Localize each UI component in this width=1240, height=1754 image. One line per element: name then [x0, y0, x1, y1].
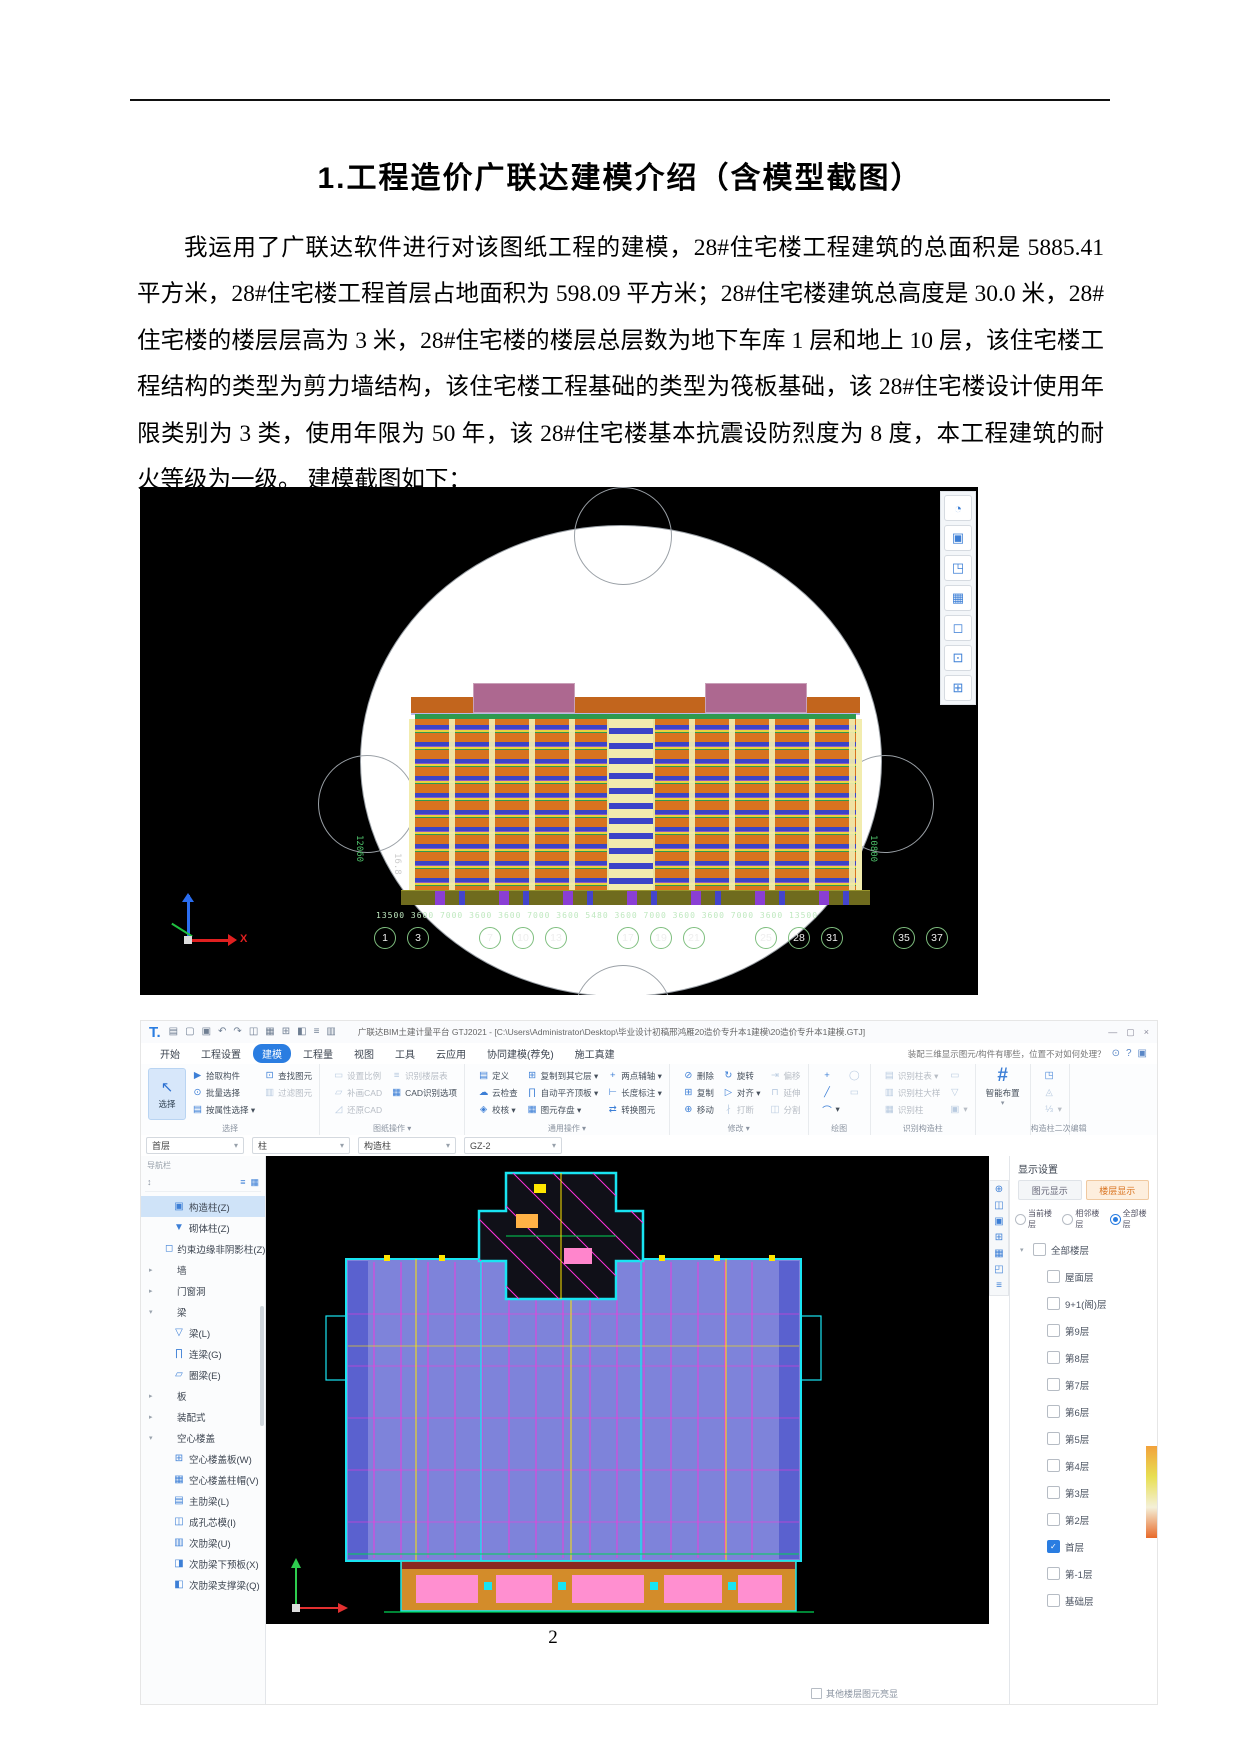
command-icon: ⇥: [770, 1070, 781, 1081]
ribbon-command[interactable]: ╱: [822, 1085, 840, 1100]
chevron-down-icon: ▾: [1001, 1099, 1005, 1107]
app-ribbon: ↖ 选择 ▶拾取构件⊡查找图元⊙批量选择▥过滤图元▤按属性选择 ▾ 选择 ▭设置…: [141, 1064, 1157, 1136]
view-tool-button[interactable]: ◔: [944, 495, 972, 521]
quick-access-icon[interactable]: ↷: [233, 1027, 241, 1037]
axis-bubble: [854, 927, 882, 947]
legend-color-strip: [1146, 1446, 1157, 1538]
ribbon-command[interactable]: ⊞复制: [683, 1085, 714, 1100]
ribbon-command[interactable]: ◯: [849, 1068, 863, 1083]
axis-bubble: 28: [788, 927, 810, 949]
tree-item[interactable]: ▾ 梁: [141, 1301, 265, 1322]
quick-access-icon[interactable]: ▦: [265, 1027, 274, 1037]
ribbon-command[interactable]: ▶拾取构件: [192, 1068, 255, 1083]
menu-tab[interactable]: 工程设置: [192, 1044, 250, 1063]
floor-row[interactable]: 第6层: [1010, 1398, 1157, 1425]
display-panel-header: 显示设置: [1010, 1156, 1157, 1180]
tree-item[interactable]: ▸ 板: [141, 1385, 265, 1406]
floor-checkbox[interactable]: [1047, 1270, 1060, 1283]
other-floors-option[interactable]: 其他楼层图元亮显: [811, 1687, 898, 1700]
canvas-tool-icon[interactable]: ▦: [994, 1249, 1003, 1259]
ribbon-command[interactable]: ◬: [1044, 1085, 1062, 1100]
axis-bubble: [716, 927, 744, 947]
page-header-rule: [130, 99, 1110, 101]
floor-checkbox[interactable]: [1047, 1513, 1060, 1526]
ribbon-command[interactable]: ≡识别楼层表: [391, 1068, 457, 1083]
command-icon: ▥: [264, 1087, 275, 1098]
orbit-handle-top: [574, 487, 672, 585]
command-icon: ▣: [949, 1104, 960, 1115]
floor-checkbox[interactable]: [1047, 1324, 1060, 1337]
component-icon: ◫: [173, 1516, 185, 1527]
ribbon-command[interactable]: ▤定义: [478, 1068, 518, 1083]
floor-row[interactable]: 第4层: [1010, 1452, 1157, 1479]
command-icon: ◬: [1044, 1087, 1055, 1098]
axis-bubble: 31: [821, 927, 843, 949]
page-number: 2: [538, 1627, 568, 1649]
ribbon-command[interactable]: ▦CAD识别选项: [391, 1085, 457, 1100]
canvas-tool-icon[interactable]: ▣: [994, 1217, 1003, 1227]
component-icon: ◨: [173, 1558, 185, 1569]
floor-checkbox[interactable]: [1047, 1594, 1060, 1607]
context-dropdown[interactable]: GZ-2: [464, 1137, 562, 1154]
command-icon: ⊓: [770, 1087, 781, 1098]
axis-triad: X: [168, 887, 258, 967]
ribbon-command[interactable]: ▭: [849, 1085, 863, 1100]
command-icon: ⇄: [607, 1104, 618, 1115]
navigation-panel: 导航栏 ↕ ≡▦ ▣ 构造柱(Z) ▼ 砌体柱(Z) ◻ 约束边缘非阴影柱(Z): [141, 1156, 266, 1704]
menu-tab[interactable]: 建模: [253, 1044, 291, 1063]
command-icon: ⅓: [1044, 1104, 1055, 1115]
context-dropdown[interactable]: 首层: [146, 1137, 244, 1154]
component-icon: ▣: [173, 1201, 185, 1212]
ribbon-command[interactable]: ⇥偏移: [770, 1068, 801, 1083]
floor-checkbox[interactable]: [1047, 1297, 1060, 1310]
ribbon-command[interactable]: ⊞复制到其它层 ▾: [527, 1068, 599, 1083]
command-icon: ◫: [770, 1104, 781, 1115]
dim-label-left: 12060: [354, 835, 364, 862]
other-floors-checkbox[interactable]: [811, 1688, 822, 1699]
chevron-down-icon: [446, 1141, 450, 1150]
canvas-tool-icon[interactable]: ◰: [994, 1265, 1003, 1275]
ribbon-group-identify-column: ▤识别柱表 ▾▭▥识别柱大样▽▦识别柱▣▾ 识别构造柱: [871, 1064, 976, 1135]
app-titlebar: T. ▤▢▣↶↷◫▦⊞◧≡▥ 广联达BIM土建计量平台 GTJ2021 - [C…: [141, 1021, 1157, 1043]
floor-checkbox[interactable]: [1047, 1432, 1060, 1445]
foundation-band: [401, 890, 870, 905]
menu-tab[interactable]: 视图: [345, 1044, 383, 1063]
command-icon: ▤: [478, 1070, 489, 1081]
ribbon-command[interactable]: ⌒▾: [822, 1102, 840, 1117]
component-icon: ◧: [173, 1579, 185, 1590]
ribbon-command[interactable]: ∏自动平齐顶板 ▾: [527, 1085, 599, 1100]
tree-item[interactable]: ◫ 成孔芯模(I): [141, 1511, 265, 1532]
command-icon: ▦: [391, 1087, 402, 1098]
view-tool-button[interactable]: ⊞: [944, 675, 972, 701]
ribbon-command[interactable]: ▷对齐 ▾: [723, 1085, 761, 1100]
drawing-canvas[interactable]: [266, 1156, 989, 1624]
command-icon: ▷: [723, 1087, 734, 1098]
select-button[interactable]: ↖ 选择: [148, 1068, 186, 1120]
sort-icon[interactable]: ↕: [147, 1177, 152, 1187]
context-dropdown[interactable]: 柱: [252, 1137, 350, 1154]
tree-twisty-icon: ▸: [149, 1287, 157, 1295]
window-control-button[interactable]: ×: [1144, 1027, 1149, 1038]
command-icon: ⊡: [264, 1070, 275, 1081]
floor-row[interactable]: 第8层: [1010, 1344, 1157, 1371]
axis-bubble: [440, 927, 468, 947]
floor-row[interactable]: 9+1(阁)层: [1010, 1290, 1157, 1317]
command-icon: ▥: [884, 1087, 895, 1098]
ribbon-command[interactable]: ⇄转换图元: [607, 1102, 662, 1117]
ribbon-command[interactable]: ▽: [949, 1085, 967, 1100]
ribbon-command[interactable]: ◿还原CAD: [333, 1102, 382, 1117]
gtj-app-screenshot: T. ▤▢▣↶↷◫▦⊞◧≡▥ 广联达BIM土建计量平台 GTJ2021 - [C…: [140, 1020, 1158, 1705]
doc-paragraph: 我运用了广联达软件进行对该图纸工程的建模，28#住宅楼工程建筑的总面积是 588…: [137, 225, 1104, 504]
window-control-button[interactable]: ▢: [1126, 1027, 1135, 1038]
tree-twisty-icon: ▾: [149, 1434, 157, 1442]
ribbon-command[interactable]: ▱补画CAD: [333, 1085, 382, 1100]
floor-scope-radio[interactable]: 当前楼层: [1015, 1208, 1057, 1230]
help-icon[interactable]: ?: [1126, 1048, 1132, 1059]
ribbon-command[interactable]: ⊓延伸: [770, 1085, 801, 1100]
tree-item[interactable]: ◻ 约束边缘非阴影柱(Z): [141, 1238, 265, 1259]
command-icon: +: [607, 1070, 618, 1081]
ribbon-command[interactable]: ▦识别柱: [884, 1102, 941, 1117]
ribbon-command[interactable]: ▭设置比例: [333, 1068, 382, 1083]
radio-icon: [1110, 1214, 1121, 1225]
floor-checkbox[interactable]: [1047, 1351, 1060, 1364]
ribbon-group-select: ↖ 选择 ▶拾取构件⊡查找图元⊙批量选择▥过滤图元▤按属性选择 ▾ 选择: [141, 1064, 320, 1135]
command-icon: ∏: [527, 1087, 538, 1098]
axis-bubble: 25: [755, 927, 777, 949]
menu-tab[interactable]: 协同建模(荐免): [478, 1044, 563, 1063]
penthouse-left: [473, 683, 575, 713]
ribbon-command[interactable]: ⊙批量选择: [192, 1085, 255, 1100]
floor-row[interactable]: 第-1层: [1010, 1560, 1157, 1587]
tree-item[interactable]: ▥ 次肋梁(U): [141, 1532, 265, 1553]
chevron-down-icon: [552, 1141, 556, 1150]
help-icon[interactable]: ▣: [1138, 1048, 1147, 1059]
axis-bubble: 21: [683, 927, 705, 949]
ribbon-command[interactable]: +: [822, 1068, 840, 1083]
tree-item[interactable]: ◨ 次肋梁下预板(X): [141, 1553, 265, 1574]
ribbon-command[interactable]: ▤按属性选择 ▾: [192, 1102, 255, 1117]
command-icon: ▦: [884, 1104, 895, 1115]
quick-access-icon[interactable]: ↶: [218, 1027, 226, 1037]
canvas-tool-icon[interactable]: ◫: [994, 1201, 1003, 1211]
quick-access-icon[interactable]: ▤: [169, 1027, 178, 1037]
tree-item[interactable]: ▸ 装配式: [141, 1406, 265, 1427]
axis-x-label: X: [240, 933, 247, 945]
floor-list: ▾ 全部楼层 屋面层 9+1(阁)层 第9层: [1010, 1234, 1157, 1614]
quick-access-icon[interactable]: ◧: [297, 1027, 306, 1037]
command-icon: ╱: [822, 1087, 833, 1098]
app-main-area: 导航栏 ↕ ≡▦ ▣ 构造柱(Z) ▼ 砌体柱(Z) ◻ 约束边缘非阴影柱(Z): [141, 1156, 1157, 1704]
canvas-toolbar: ⊕◫▣⊞▦◰≡: [989, 1180, 1009, 1296]
quick-access-icon[interactable]: ▣: [202, 1027, 211, 1037]
menu-tab[interactable]: 施工真建: [566, 1044, 624, 1063]
component-icon: ▼: [173, 1222, 185, 1233]
radio-icon: [1015, 1214, 1026, 1225]
tree-twisty-icon: ▸: [149, 1413, 157, 1421]
dim-label-right: 10800: [868, 835, 878, 862]
ribbon-command[interactable]: ◫分割: [770, 1102, 801, 1117]
floor-row[interactable]: 屋面层: [1010, 1263, 1157, 1290]
command-icon: ≡: [391, 1070, 402, 1081]
ribbon-command[interactable]: ◳: [1044, 1068, 1062, 1083]
command-icon: ◳: [1044, 1070, 1055, 1081]
ribbon-group-label: 选择: [141, 1123, 319, 1134]
display-tab[interactable]: 楼层显示: [1086, 1180, 1150, 1200]
chevron-down-icon: [234, 1141, 238, 1150]
floor-row[interactable]: 第9层: [1010, 1317, 1157, 1344]
floor-scope-radio[interactable]: 全部楼层: [1110, 1208, 1152, 1230]
ribbon-group-drawing-ops: ▭设置比例≡识别楼层表▱补画CAD▦CAD识别选项◿还原CAD 图纸操作 ▾: [320, 1064, 465, 1135]
floor-checkbox[interactable]: [1047, 1486, 1060, 1499]
window-controls: —▢×: [1108, 1027, 1149, 1038]
command-icon: ⊢: [607, 1087, 618, 1098]
command-icon: ↻: [723, 1070, 734, 1081]
view-toolbar: ◔▣◳▦◻⊡⊞: [940, 491, 976, 705]
app-menubar: 开始工程设置建模工程量视图工具云应用协同建模(荐免)施工真建 装配三维显示图元/…: [141, 1043, 1157, 1065]
context-dropdown[interactable]: 构造柱: [358, 1137, 456, 1154]
command-icon: ◈: [478, 1104, 489, 1115]
view-mode-icon[interactable]: ≡: [240, 1177, 245, 1188]
tree-item[interactable]: ▦ 空心楼盖柱帽(V): [141, 1469, 265, 1490]
command-icon: ⌒: [822, 1103, 833, 1117]
axis-bubble: 35: [893, 927, 915, 949]
axis-bubble: 3: [407, 927, 429, 949]
quick-access-toolbar: ▤▢▣↶↷◫▦⊞◧≡▥: [169, 1027, 336, 1037]
nav-scrollbar[interactable]: [260, 1306, 264, 1426]
ribbon-command[interactable]: ∤打断: [723, 1102, 761, 1117]
floor-row[interactable]: 第7层: [1010, 1371, 1157, 1398]
dimension-string: 13500 3600 7000 3600 3600 7000 3600 5480…: [376, 911, 888, 920]
axis-bubble: 37: [926, 927, 948, 949]
axis-bubble: 19: [650, 927, 672, 949]
canvas-tool-icon[interactable]: ⊞: [995, 1233, 1003, 1243]
command-icon: ▦: [527, 1104, 538, 1115]
context-bar: 首层 柱 构造柱 GZ-2: [141, 1135, 1157, 1157]
ribbon-group-label: 构造柱二次编辑: [1031, 1123, 1069, 1134]
floor-row[interactable]: 第2层: [1010, 1506, 1157, 1533]
command-icon: ∤: [723, 1104, 734, 1115]
axis-bubble: [578, 927, 606, 947]
canvas-axis-triad: [291, 1558, 348, 1613]
floor-row[interactable]: 第3层: [1010, 1479, 1157, 1506]
window-title: 广联达BIM土建计量平台 GTJ2021 - [C:\Users\Adminis…: [358, 1026, 1100, 1038]
quick-access-icon[interactable]: ▢: [185, 1027, 194, 1037]
command-icon: ▭: [949, 1070, 960, 1081]
command-icon: ▽: [949, 1087, 960, 1098]
model-3d-screenshot: 12060 16.8 10800 13500 3600 7000 3600 36…: [140, 487, 978, 995]
menu-tab[interactable]: 工具: [386, 1044, 424, 1063]
tree-item[interactable]: ⊞ 空心楼盖板(W): [141, 1448, 265, 1469]
view-tool-button[interactable]: ▣: [944, 525, 972, 551]
ribbon-command[interactable]: ⊘删除: [683, 1068, 714, 1083]
ribbon-command[interactable]: ▤识别柱表 ▾: [884, 1068, 941, 1083]
axis-bubbles: 13710131719212528313537: [374, 927, 948, 949]
ribbon-group-general-ops: ▤定义⊞复制到其它层 ▾+两点辅轴 ▾☁云检查∏自动平齐顶板 ▾⊢长度标注 ▾◈…: [465, 1064, 670, 1135]
tree-twisty-icon: ▾: [1020, 1246, 1028, 1254]
floor-checkbox[interactable]: [1047, 1540, 1060, 1553]
tree-item[interactable]: ▱ 圈梁(E): [141, 1364, 265, 1385]
floor-checkbox[interactable]: [1033, 1243, 1046, 1256]
orbit-handle-left: [318, 755, 416, 853]
ribbon-group-label: 绘图: [809, 1123, 870, 1134]
command-icon: ▭: [333, 1070, 344, 1081]
floor-plan-drawing: [266, 1156, 989, 1624]
quick-access-icon[interactable]: ≡: [314, 1027, 320, 1037]
axis-bubble: 1: [374, 927, 396, 949]
tree-item[interactable]: ▼ 砌体柱(Z): [141, 1217, 265, 1238]
ribbon-command[interactable]: ↻旋转: [723, 1068, 761, 1083]
ribbon-group-label[interactable]: 修改 ▾: [670, 1123, 808, 1134]
help-icon[interactable]: ⊙: [1112, 1048, 1120, 1059]
tree-item[interactable]: ▾ 空心楼盖: [141, 1427, 265, 1448]
axis-bubble: 10: [512, 927, 534, 949]
menu-tab[interactable]: 云应用: [427, 1044, 475, 1063]
component-icon: ⊞: [173, 1453, 185, 1464]
component-icon: ▱: [173, 1369, 185, 1380]
radio-icon: [1062, 1214, 1073, 1225]
ribbon-group-label[interactable]: 通用操作 ▾: [465, 1123, 669, 1134]
command-icon: ▤: [884, 1070, 895, 1081]
smart-layout-icon: #: [997, 1066, 1008, 1087]
axis-bubble: 17: [617, 927, 639, 949]
ribbon-group-label[interactable]: 图纸操作 ▾: [320, 1123, 464, 1134]
tree-twisty-icon: ▸: [149, 1266, 157, 1274]
quick-access-icon[interactable]: ▥: [326, 1027, 335, 1037]
floor-row[interactable]: ▾ 全部楼层: [1010, 1236, 1157, 1263]
command-icon: ◿: [333, 1104, 344, 1115]
command-icon: ⊞: [683, 1087, 694, 1098]
tree-item[interactable]: ∏ 连梁(G): [141, 1343, 265, 1364]
view-tool-button[interactable]: ◻: [944, 615, 972, 641]
canvas-tool-icon[interactable]: ≡: [996, 1281, 1002, 1291]
axis-bubble: 13: [545, 927, 567, 949]
ribbon-command[interactable]: ☁云检查: [478, 1085, 518, 1100]
ribbon-group-column-edit: ◳◬⅓▾ 构造柱二次编辑: [1031, 1064, 1070, 1135]
ribbon-command[interactable]: ▥识别柱大样: [884, 1085, 941, 1100]
window-control-button[interactable]: —: [1108, 1027, 1117, 1038]
quick-access-icon[interactable]: ◫: [249, 1027, 258, 1037]
tree-item[interactable]: ▽ 梁(L): [141, 1322, 265, 1343]
penthouse-right: [705, 683, 807, 713]
tree-item[interactable]: ▸ 墙: [141, 1259, 265, 1280]
help-search-text: 装配三维显示图元/构件有哪些，位置不对如何处理？: [908, 1048, 1106, 1060]
ribbon-command[interactable]: ⊕移动: [683, 1102, 714, 1117]
ribbon-command[interactable]: ⊢长度标注 ▾: [607, 1085, 662, 1100]
display-tab[interactable]: 图元显示: [1018, 1180, 1082, 1200]
canvas-tool-icon[interactable]: ⊕: [995, 1185, 1003, 1195]
command-icon: ▶: [192, 1070, 203, 1081]
command-icon: ⊙: [192, 1087, 203, 1098]
ribbon-group-modify: ⊘删除↻旋转⇥偏移⊞复制▷对齐 ▾⊓延伸⊕移动∤打断◫分割 修改 ▾: [670, 1064, 809, 1135]
command-icon: ◯: [849, 1070, 860, 1081]
floor-row[interactable]: 首层: [1010, 1533, 1157, 1560]
ribbon-command[interactable]: ⅓▾: [1044, 1102, 1062, 1117]
component-icon: ▽: [173, 1327, 185, 1338]
floor-checkbox[interactable]: [1047, 1405, 1060, 1418]
glodon-logo: T.: [149, 1025, 161, 1040]
ribbon-command[interactable]: ▣▾: [949, 1102, 967, 1117]
component-icon: ∏: [173, 1348, 185, 1359]
menu-tab[interactable]: 工程量: [294, 1044, 342, 1063]
floor-row[interactable]: 第5层: [1010, 1425, 1157, 1452]
ribbon-command[interactable]: +两点辅轴 ▾: [607, 1068, 662, 1083]
component-icon: ◻: [165, 1243, 173, 1254]
floor-checkbox[interactable]: [1047, 1459, 1060, 1472]
tree-item[interactable]: ▤ 主肋梁(L): [141, 1490, 265, 1511]
floor-scope-radio[interactable]: 相邻楼层: [1062, 1208, 1104, 1230]
menu-tab[interactable]: 开始: [151, 1044, 189, 1063]
nav-panel-header: 导航栏: [141, 1156, 265, 1173]
command-icon: ▭: [849, 1087, 860, 1098]
stair-core: [607, 719, 655, 891]
tree-item[interactable]: ◧ 次肋梁支撑梁(Q): [141, 1574, 265, 1595]
nav-search-row: ↕ ≡▦: [145, 1173, 261, 1192]
view-tool-button[interactable]: ⊡: [944, 645, 972, 671]
quick-access-icon[interactable]: ⊞: [282, 1027, 290, 1037]
view-mode-icon[interactable]: ▦: [250, 1177, 259, 1188]
ribbon-group-smart-layout[interactable]: # 智能布置 ▾: [976, 1064, 1031, 1135]
page-title: 1.工程造价广联达建模介绍（含模型截图）: [130, 153, 1110, 197]
axis-bubble: 7: [479, 927, 501, 949]
component-tree: ▣ 构造柱(Z) ▼ 砌体柱(Z) ◻ 约束边缘非阴影柱(Z) ▸ 墙 ▸: [141, 1196, 265, 1595]
component-icon: ▥: [173, 1537, 185, 1548]
command-icon: ⊕: [683, 1104, 694, 1115]
view-tool-button[interactable]: ◳: [944, 555, 972, 581]
command-icon: ⊘: [683, 1070, 694, 1081]
tree-twisty-icon: ▾: [149, 1308, 157, 1316]
component-icon: ▦: [173, 1474, 185, 1485]
tree-item[interactable]: ▣ 构造柱(Z): [141, 1196, 265, 1217]
chevron-down-icon: [340, 1141, 344, 1150]
view-tool-button[interactable]: ▦: [944, 585, 972, 611]
dim-label-left-2: 16.8: [392, 853, 402, 875]
floor-checkbox[interactable]: [1047, 1567, 1060, 1580]
command-icon: ⊞: [527, 1070, 538, 1081]
ribbon-command[interactable]: ▭: [949, 1068, 967, 1083]
ribbon-command[interactable]: ▥过滤图元: [264, 1085, 312, 1100]
command-icon: ▱: [333, 1087, 344, 1098]
component-icon: ▤: [173, 1495, 185, 1506]
ribbon-command[interactable]: ◈校核 ▾: [478, 1102, 518, 1117]
tree-twisty-icon: ▸: [149, 1392, 157, 1400]
ribbon-command[interactable]: ⊡查找图元: [264, 1068, 312, 1083]
ribbon-group-draw: +◯╱▭⌒▾ 绘图: [809, 1064, 871, 1135]
command-icon: ☁: [478, 1087, 489, 1098]
display-settings-panel: 显示设置 图元显示楼层显示 当前楼层 相邻楼层 全部楼层 ▾ 全部楼层 屋面层: [1009, 1156, 1157, 1704]
ribbon-command[interactable]: ▦图元存盘 ▾: [527, 1102, 599, 1117]
ribbon-group-label: 识别构造柱: [871, 1123, 975, 1134]
floor-checkbox[interactable]: [1047, 1378, 1060, 1391]
command-icon: ▤: [192, 1104, 203, 1115]
floor-row[interactable]: 基础层: [1010, 1587, 1157, 1614]
tree-item[interactable]: ▸ 门窗洞: [141, 1280, 265, 1301]
cursor-icon: ↖: [161, 1078, 174, 1096]
command-icon: +: [822, 1070, 833, 1081]
building-model: [409, 683, 862, 905]
